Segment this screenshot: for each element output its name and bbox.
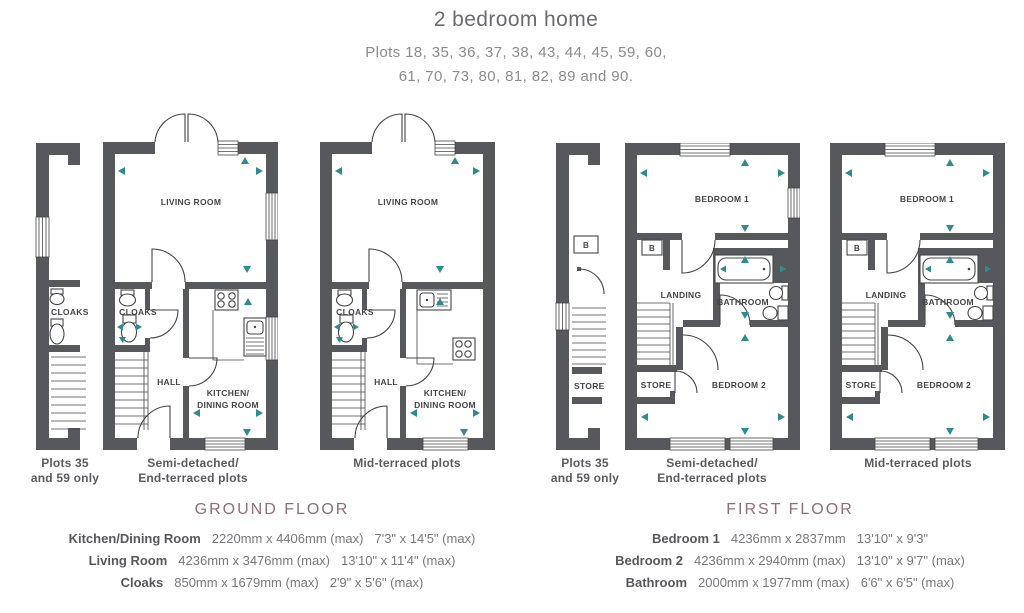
- front-door: [355, 406, 387, 438]
- room-size-metric: 4236mm x 2837mm: [731, 531, 846, 546]
- living-room-door: [369, 249, 402, 282]
- kitchen-label-line2: DINING ROOM: [414, 400, 476, 410]
- room-size-metric: 850mm x 1679mm (max): [174, 575, 318, 590]
- kitchen-label-line1: KITCHEN/: [424, 388, 467, 398]
- bedroom1-label: BEDROOM 1: [695, 194, 749, 204]
- kitchen-door: [406, 358, 434, 386]
- store-label: STORE: [641, 380, 672, 390]
- room-name: Bedroom 2: [615, 553, 683, 568]
- room-size-metric: 2000mm x 1977mm (max): [698, 575, 850, 590]
- room-size-metric: 4236mm x 3476mm (max): [178, 553, 330, 568]
- room-name: Bathroom: [626, 575, 687, 590]
- room-size-imperial: 13'10" x 9'7" (max): [857, 553, 965, 568]
- store-door: [675, 371, 697, 393]
- cloaks-sink-icon: [120, 290, 136, 306]
- stairs: [842, 303, 878, 365]
- kitchen-sink-icon: [244, 318, 266, 356]
- plots-list-line1: Plots 18, 35, 36, 37, 38, 43, 44, 45, 59…: [206, 44, 826, 61]
- caption-first-mid: Mid-terraced plots: [838, 456, 998, 471]
- first-floor-heading: FIRST FLOOR: [558, 501, 1022, 519]
- caption-ground-partial: Plots 35 and 59 only: [20, 456, 110, 486]
- toilet-icon: [968, 306, 993, 320]
- kitchen-counter: [213, 310, 244, 360]
- bedroom2-label: BEDROOM 2: [712, 380, 766, 390]
- toilet-icon: [50, 319, 64, 344]
- bedroom2-label: BEDROOM 2: [917, 380, 971, 390]
- store-label: STORE: [846, 380, 877, 390]
- room-name: Bedroom 1: [652, 531, 720, 546]
- stairs: [332, 352, 365, 430]
- room-size-metric: 4236mm x 2940mm (max): [694, 553, 846, 568]
- walls: [556, 143, 602, 450]
- cloaks-label: CLOAKS: [336, 307, 374, 317]
- living-room-door: [152, 249, 185, 282]
- room-name: Cloaks: [121, 575, 164, 590]
- room-name: Living Room: [89, 553, 168, 568]
- bedroom1-door: [887, 240, 920, 273]
- boiler-label: B: [649, 244, 655, 253]
- hall-label: HALL: [157, 377, 181, 387]
- first-floor-dimensions-table: Bedroom 1 4236mm x 2837mm 13'10" x 9'3" …: [558, 531, 1022, 597]
- sink-icon: [50, 289, 64, 305]
- landing-door: [577, 267, 604, 294]
- bathroom-sink-icon: [975, 286, 994, 300]
- front-door: [138, 406, 170, 438]
- room-size-metric: 2220mm x 4406mm (max): [212, 531, 364, 546]
- room-size-imperial: 2'9" x 5'6" (max): [330, 575, 424, 590]
- ground-floor-partial-plan: CLOAKS: [34, 143, 90, 453]
- plots-list-line2: 61, 70, 73, 80, 81, 82, 89 and 90.: [206, 68, 826, 85]
- stairs: [572, 308, 606, 364]
- hob-icon: [453, 338, 475, 360]
- caption-ground-mid: Mid-terraced plots: [327, 456, 487, 471]
- caption-first-partial: Plots 35 and 59 only: [540, 456, 630, 486]
- cloaks-label-partial: CLOAKS: [51, 307, 89, 317]
- caption-first-semi: Semi-detached/ End-terraced plots: [632, 456, 792, 486]
- bathroom-label: BATHROOM: [717, 297, 769, 307]
- french-doors: [372, 114, 435, 142]
- page-title: 2 bedroom home: [256, 8, 776, 32]
- landing-label: LANDING: [661, 290, 702, 300]
- living-room-label: LIVING ROOM: [161, 197, 221, 207]
- kitchen-label-line2: DINING ROOM: [197, 400, 259, 410]
- floorplan-page: 2 bedroom home Plots 18, 35, 36, 37, 38,…: [0, 0, 1024, 613]
- toilet-icon: [763, 306, 788, 320]
- bedroom1-label: BEDROOM 1: [900, 194, 954, 204]
- stairs: [637, 303, 673, 365]
- first-floor-mid-terraced-plan: BEDROOM 1 B LANDING BATHROOM STORE BEDRO…: [830, 143, 1005, 453]
- dimension-row: Bathroom 2000mm x 1977mm (max) 6'6" x 6'…: [558, 575, 1022, 597]
- dimension-row: Bedroom 2 4236mm x 2940mm (max) 13'10" x…: [558, 553, 1022, 575]
- first-floor-partial-plan: B STORE: [554, 143, 610, 453]
- room-size-imperial: 13'10" x 11'4" (max): [341, 553, 455, 568]
- hall-label: HALL: [374, 377, 398, 387]
- bathroom-label: BATHROOM: [922, 297, 974, 307]
- kitchen-door: [189, 358, 217, 386]
- living-room-label: LIVING ROOM: [378, 197, 438, 207]
- room-size-imperial: 7'3" x 14'5" (max): [374, 531, 475, 546]
- room-size-imperial: 13'10" x 9'3": [857, 531, 928, 546]
- first-floor-semi-detached-plan: BEDROOM 1 B LANDING BATHROOM STORE BEDRO…: [625, 143, 800, 453]
- bedroom2-door: [888, 335, 923, 370]
- kitchen-counter: [417, 310, 453, 364]
- french-doors: [155, 114, 218, 142]
- bedroom2-door: [683, 335, 718, 370]
- stairs: [115, 352, 148, 430]
- dimension-row: Bedroom 1 4236mm x 2837mm 13'10" x 9'3": [558, 531, 1022, 553]
- stairs: [51, 357, 86, 429]
- side-window: [556, 303, 569, 330]
- bedroom1-door: [682, 240, 715, 273]
- kitchen-label-line1: KITCHEN/: [207, 388, 250, 398]
- ground-floor-heading: GROUND FLOOR: [40, 501, 504, 519]
- boiler-label: B: [854, 244, 860, 253]
- boiler-label-partial: B: [583, 241, 589, 250]
- cloaks-label: CLOAKS: [119, 307, 157, 317]
- bathroom-sink-icon: [770, 286, 789, 300]
- store-label-partial: STORE: [574, 381, 605, 391]
- dimension-row: Kitchen/Dining Room 2220mm x 4406mm (max…: [40, 531, 504, 553]
- room-name: Kitchen/Dining Room: [69, 531, 201, 546]
- hob-icon: [215, 290, 238, 310]
- landing-label: LANDING: [866, 290, 907, 300]
- dimension-row: Cloaks 850mm x 1679mm (max) 2'9" x 5'6" …: [40, 575, 504, 597]
- cloaks-sink-icon: [337, 290, 353, 306]
- store-door: [880, 371, 902, 393]
- dimension-row: Living Room 4236mm x 3476mm (max) 13'10"…: [40, 553, 504, 575]
- caption-ground-semi: Semi-detached/ End-terraced plots: [113, 456, 273, 486]
- kitchen-sink-icon: [417, 290, 451, 310]
- ground-floor-semi-detached-plan: LIVING ROOM CLOAKS HALL KITCHEN/ DINING …: [103, 108, 278, 453]
- side-window: [36, 217, 49, 257]
- room-size-imperial: 6'6" x 6'5" (max): [861, 575, 955, 590]
- ground-floor-dimensions-table: Kitchen/Dining Room 2220mm x 4406mm (max…: [40, 531, 504, 597]
- ground-floor-mid-terraced-plan: LIVING ROOM CLOAKS HALL KITCHEN/ DINING …: [320, 108, 495, 453]
